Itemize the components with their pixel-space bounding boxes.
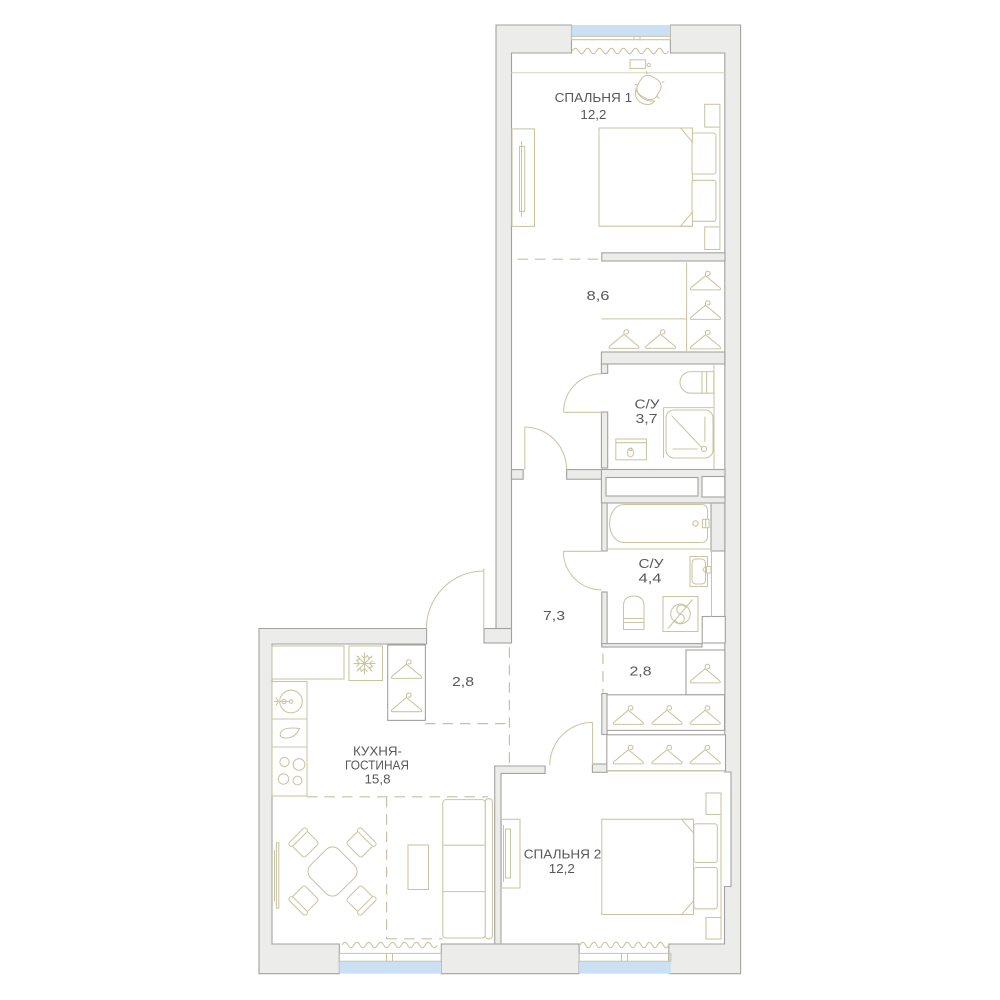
svg-text:СПАЛЬНЯ 2: СПАЛЬНЯ 2 (524, 847, 602, 862)
svg-text:КУХНЯ-: КУХНЯ- (353, 744, 402, 759)
svg-text:4,4: 4,4 (639, 571, 662, 586)
svg-text:12,2: 12,2 (549, 861, 575, 876)
svg-text:15,8: 15,8 (365, 772, 391, 787)
svg-text:8,6: 8,6 (587, 288, 610, 303)
svg-text:3,7: 3,7 (636, 411, 658, 426)
svg-text:С/У: С/У (635, 397, 661, 412)
svg-text:ГОСТИНАЯ: ГОСТИНАЯ (345, 758, 409, 773)
svg-text:СПАЛЬНЯ 1: СПАЛЬНЯ 1 (555, 90, 633, 105)
svg-text:2,8: 2,8 (630, 664, 652, 679)
svg-text:С/У: С/У (639, 556, 665, 571)
svg-text:7,3: 7,3 (543, 608, 565, 623)
svg-text:2,8: 2,8 (452, 674, 474, 689)
svg-text:12,2: 12,2 (580, 107, 606, 122)
